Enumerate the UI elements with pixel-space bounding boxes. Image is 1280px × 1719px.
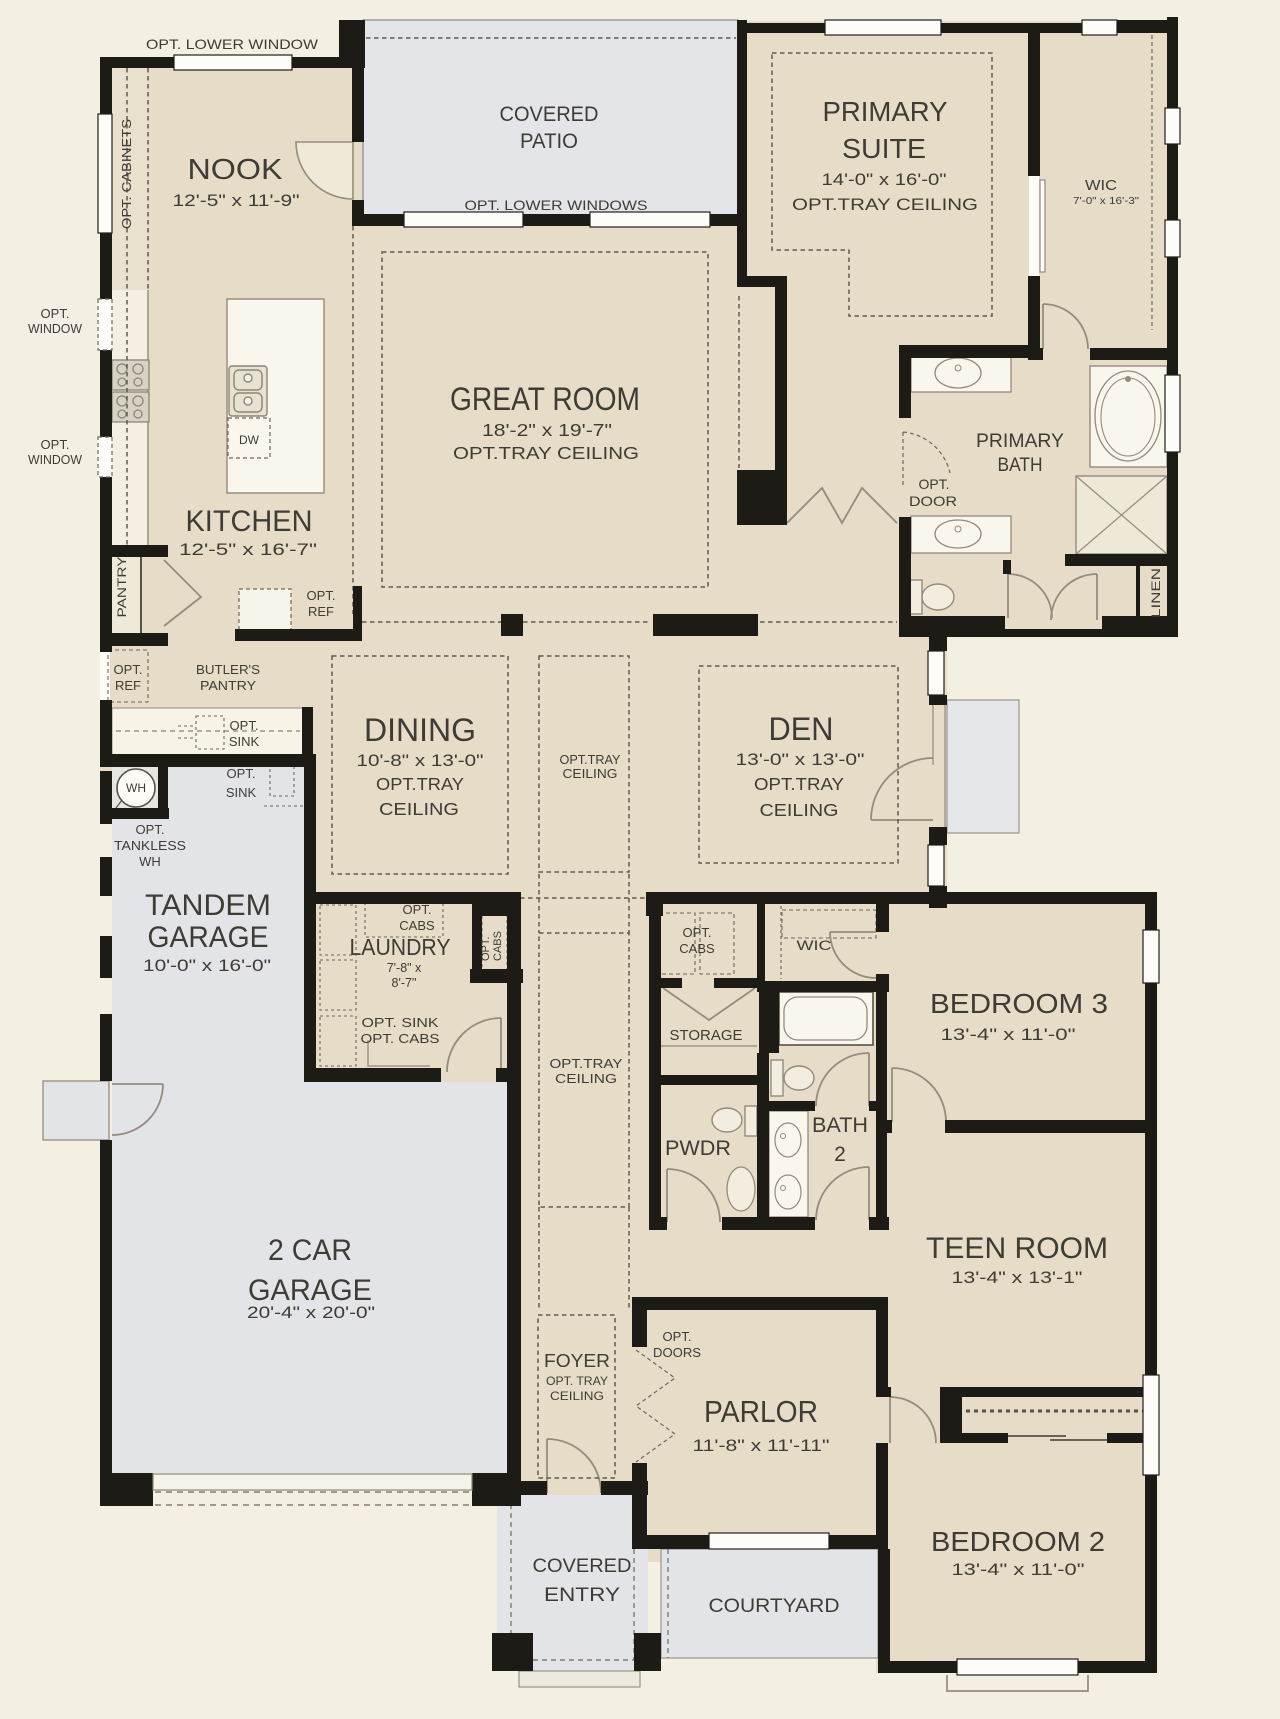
svg-text:13'-4" x 13'-1": 13'-4" x 13'-1" — [952, 1268, 1083, 1287]
svg-text:REF: REF — [308, 604, 334, 619]
svg-text:PARLOR: PARLOR — [704, 1394, 818, 1429]
svg-text:18'-2" x 19'-7": 18'-2" x 19'-7" — [482, 420, 612, 440]
svg-text:DOORS: DOORS — [653, 1345, 701, 1360]
svg-text:BUTLER'S: BUTLER'S — [196, 662, 260, 677]
svg-text:OPT.: OPT. — [480, 937, 492, 961]
svg-text:PANTRY: PANTRY — [115, 557, 129, 618]
svg-text:13'-4" x 11'-0": 13'-4" x 11'-0" — [952, 1561, 1085, 1579]
svg-text:TANDEM: TANDEM — [145, 889, 271, 922]
svg-text:7'-8" x: 7'-8" x — [387, 961, 422, 975]
svg-text:7'-0" x 16'-3": 7'-0" x 16'-3" — [1073, 195, 1139, 207]
svg-text:PATIO: PATIO — [520, 130, 578, 153]
svg-text:COVERED: COVERED — [533, 1556, 632, 1577]
svg-text:WINDOW: WINDOW — [28, 452, 83, 467]
svg-text:PANTRY: PANTRY — [200, 678, 256, 693]
svg-text:OPT.: OPT. — [403, 902, 432, 917]
svg-text:WIC: WIC — [1085, 177, 1117, 194]
svg-text:OPT. TRAY: OPT. TRAY — [546, 1374, 608, 1388]
svg-text:OPT.: OPT. — [41, 306, 70, 321]
svg-text:NOOK: NOOK — [188, 154, 284, 186]
svg-text:10'-0" x 16'-0": 10'-0" x 16'-0" — [143, 957, 271, 975]
svg-text:OPT. CABINETS: OPT. CABINETS — [119, 119, 134, 229]
svg-text:DINING: DINING — [364, 712, 476, 748]
svg-text:WH: WH — [126, 781, 146, 795]
svg-text:OPT.TRAY: OPT.TRAY — [754, 774, 844, 794]
svg-text:ENTRY: ENTRY — [544, 1585, 620, 1606]
svg-text:PRIMARY: PRIMARY — [976, 431, 1064, 452]
svg-text:BATH: BATH — [812, 1114, 868, 1137]
svg-text:2: 2 — [834, 1143, 846, 1166]
svg-text:GARAGE: GARAGE — [248, 1274, 372, 1307]
svg-text:OPT.TRAY: OPT.TRAY — [376, 774, 464, 794]
svg-text:OPT.: OPT. — [307, 588, 336, 603]
svg-text:OPT. CABS: OPT. CABS — [361, 1031, 440, 1046]
svg-text:CABS: CABS — [492, 931, 504, 961]
svg-text:OPT.: OPT. — [41, 437, 70, 452]
svg-text:BEDROOM 2: BEDROOM 2 — [931, 1526, 1105, 1557]
svg-text:OPT.: OPT. — [230, 718, 259, 733]
svg-text:OPT.TRAY CEILING: OPT.TRAY CEILING — [453, 443, 639, 463]
svg-text:OPT. LOWER WINDOW: OPT. LOWER WINDOW — [146, 36, 319, 52]
svg-text:LAUNDRY: LAUNDRY — [350, 934, 451, 960]
svg-text:2 CAR: 2 CAR — [268, 1234, 352, 1267]
svg-text:CEILING: CEILING — [379, 799, 459, 819]
svg-text:PRIMARY: PRIMARY — [823, 96, 948, 127]
svg-text:OPT.TRAY: OPT.TRAY — [560, 752, 621, 767]
svg-text:COVERED: COVERED — [500, 103, 599, 126]
svg-text:20'-4" x 20'-0": 20'-4" x 20'-0" — [247, 1304, 375, 1322]
svg-text:OPT.: OPT. — [114, 662, 143, 677]
svg-text:CABS: CABS — [399, 918, 435, 933]
svg-text:WINDOW: WINDOW — [28, 321, 83, 336]
svg-text:CEILING: CEILING — [760, 800, 839, 820]
svg-text:CEILING: CEILING — [550, 1389, 604, 1403]
svg-text:STORAGE: STORAGE — [670, 1027, 743, 1044]
svg-text:GREAT ROOM: GREAT ROOM — [450, 381, 640, 417]
svg-text:OPT.: OPT. — [227, 766, 256, 781]
svg-text:12'-5" x 16'-7": 12'-5" x 16'-7" — [179, 540, 317, 559]
svg-text:CEILING: CEILING — [555, 1071, 617, 1086]
svg-text:CEILING: CEILING — [563, 766, 618, 781]
svg-text:KITCHEN: KITCHEN — [186, 505, 313, 538]
svg-text:OPT.TRAY CEILING: OPT.TRAY CEILING — [792, 195, 978, 214]
svg-text:11'-8" x 11'-11": 11'-8" x 11'-11" — [693, 1436, 830, 1455]
svg-text:10'-8" x 13'-0": 10'-8" x 13'-0" — [357, 751, 484, 770]
svg-text:BEDROOM 3: BEDROOM 3 — [930, 988, 1108, 1019]
svg-text:12'-5" x 11'-9": 12'-5" x 11'-9" — [173, 191, 300, 210]
svg-text:SINK: SINK — [226, 785, 257, 800]
svg-text:COURTYARD: COURTYARD — [709, 1596, 840, 1617]
svg-text:OPT.TRAY: OPT.TRAY — [550, 1056, 623, 1071]
svg-text:FOYER: FOYER — [544, 1351, 610, 1371]
svg-text:GARAGE: GARAGE — [148, 921, 269, 954]
svg-text:8'-7": 8'-7" — [392, 976, 417, 990]
svg-text:OPT.: OPT. — [136, 822, 165, 837]
svg-text:REF: REF — [115, 678, 141, 693]
svg-text:DW: DW — [239, 433, 260, 447]
svg-text:13'-4" x 11'-0": 13'-4" x 11'-0" — [941, 1025, 1076, 1044]
svg-text:WH: WH — [139, 854, 161, 869]
svg-text:DOOR: DOOR — [909, 493, 957, 509]
svg-text:OPT.: OPT. — [918, 476, 949, 492]
svg-text:SUITE: SUITE — [842, 133, 926, 164]
svg-text:OPT. SINK: OPT. SINK — [362, 1015, 439, 1030]
svg-text:TANKLESS: TANKLESS — [114, 838, 186, 853]
svg-text:13'-0" x 13'-0": 13'-0" x 13'-0" — [736, 750, 865, 769]
svg-text:WIC: WIC — [797, 937, 832, 953]
svg-text:OPT.: OPT. — [663, 1329, 692, 1344]
svg-text:14'-0" x 16'-0": 14'-0" x 16'-0" — [822, 170, 947, 189]
svg-text:OPT.: OPT. — [683, 925, 712, 940]
svg-text:SINK: SINK — [229, 734, 260, 749]
svg-text:BATH: BATH — [998, 455, 1043, 476]
svg-text:CABS: CABS — [679, 941, 715, 956]
svg-text:TEEN ROOM: TEEN ROOM — [926, 1232, 1108, 1265]
svg-text:OPT. LOWER WINDOWS: OPT. LOWER WINDOWS — [465, 197, 648, 213]
svg-text:PWDR: PWDR — [665, 1137, 731, 1160]
svg-text:LINEN: LINEN — [1149, 568, 1163, 618]
svg-text:DEN: DEN — [769, 711, 834, 747]
